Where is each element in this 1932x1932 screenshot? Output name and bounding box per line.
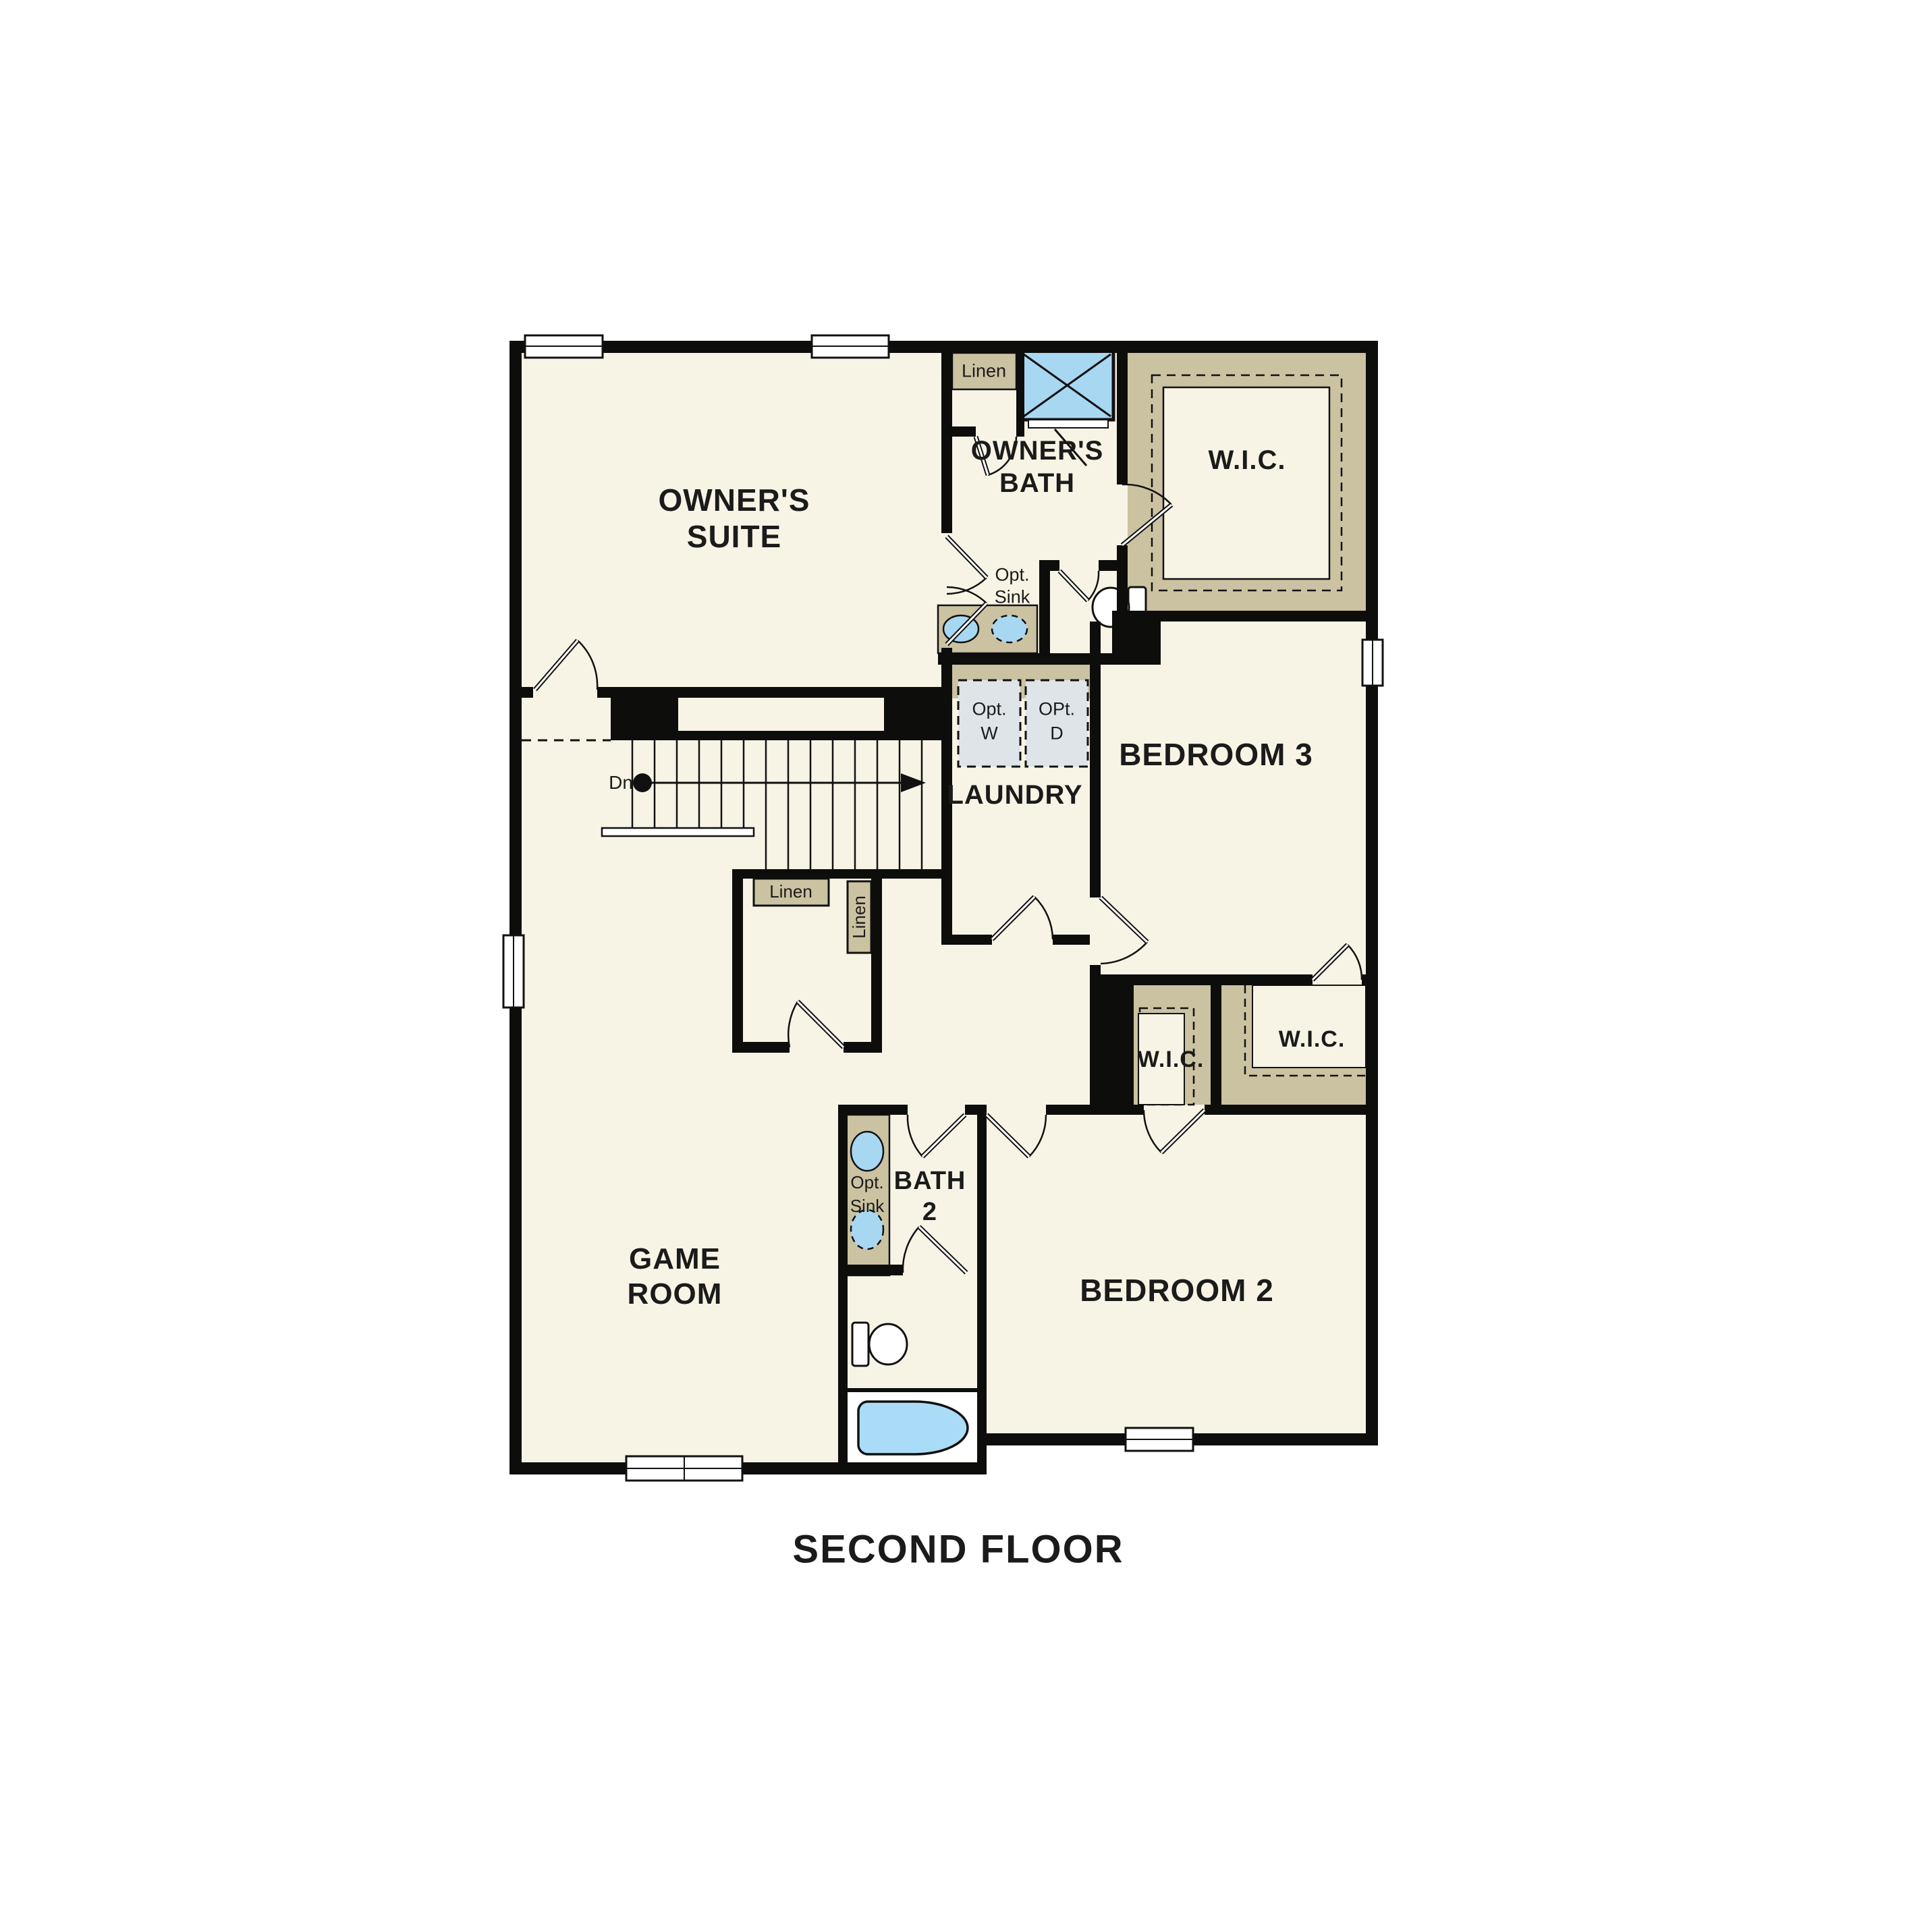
window-icon [626,1456,742,1481]
owners-bath-label-line2: BATH [999,470,1075,497]
linen-hall-label: Linen [769,883,812,900]
wic-left-label: W.I.C. [1138,1048,1205,1071]
washer-label-line1: Opt. [972,700,1006,719]
optional-sink-icon [992,615,1027,642]
bedroom2-label: BEDROOM 2 [1080,1275,1274,1306]
window-icon [503,935,524,1008]
bathtub-icon [858,1402,968,1454]
window-icon [812,335,889,358]
floor-plan-drawing [0,0,1932,1932]
game-room-label-line2: ROOM [628,1279,723,1309]
owners-suite-label-line2: SUITE [687,521,781,552]
dryer-label-line1: OPt. [1039,700,1075,719]
window-icon [1126,1428,1193,1451]
linen-vertical-label: Linen [850,895,868,939]
laundry-label: LAUNDRY [947,781,1082,808]
plan-title: SECOND FLOOR [792,1527,1124,1572]
bath2-label-line2: 2 [922,1199,937,1225]
stairs-down-label: Dn [609,773,633,792]
owners-bath-label-line1: OWNER'S [971,437,1104,464]
washer-label-line2: W [981,725,997,743]
linen-top-label: Linen [962,362,1006,381]
game-room-label-line1: GAME [629,1244,721,1274]
owners-opt-sink-label-line2: Sink [995,588,1030,607]
wic-right-label: W.I.C. [1279,1028,1346,1051]
dryer-label-line2: D [1050,725,1064,743]
bath2-opt-sink-label-line1: Opt. [850,1174,883,1191]
wic-master-floor [1163,387,1329,579]
stair-rail [602,828,754,836]
owners-suite-label-line1: OWNER'S [659,485,810,516]
wic-master-label: W.I.C. [1209,447,1286,474]
window-icon [1362,640,1383,686]
floor-plan: OWNER'S SUITE Linen OWNER'S BATH Opt. Si… [0,0,1932,1932]
bath2-label-line1: BATH [894,1168,966,1194]
owners-opt-sink-label-line1: Opt. [995,566,1029,584]
bath2-opt-sink-label-line2: Sink [850,1197,885,1215]
bedroom3-label: BEDROOM 3 [1119,739,1313,770]
toilet-icon [852,1323,907,1366]
sink-icon [851,1132,883,1171]
window-icon [525,335,603,358]
